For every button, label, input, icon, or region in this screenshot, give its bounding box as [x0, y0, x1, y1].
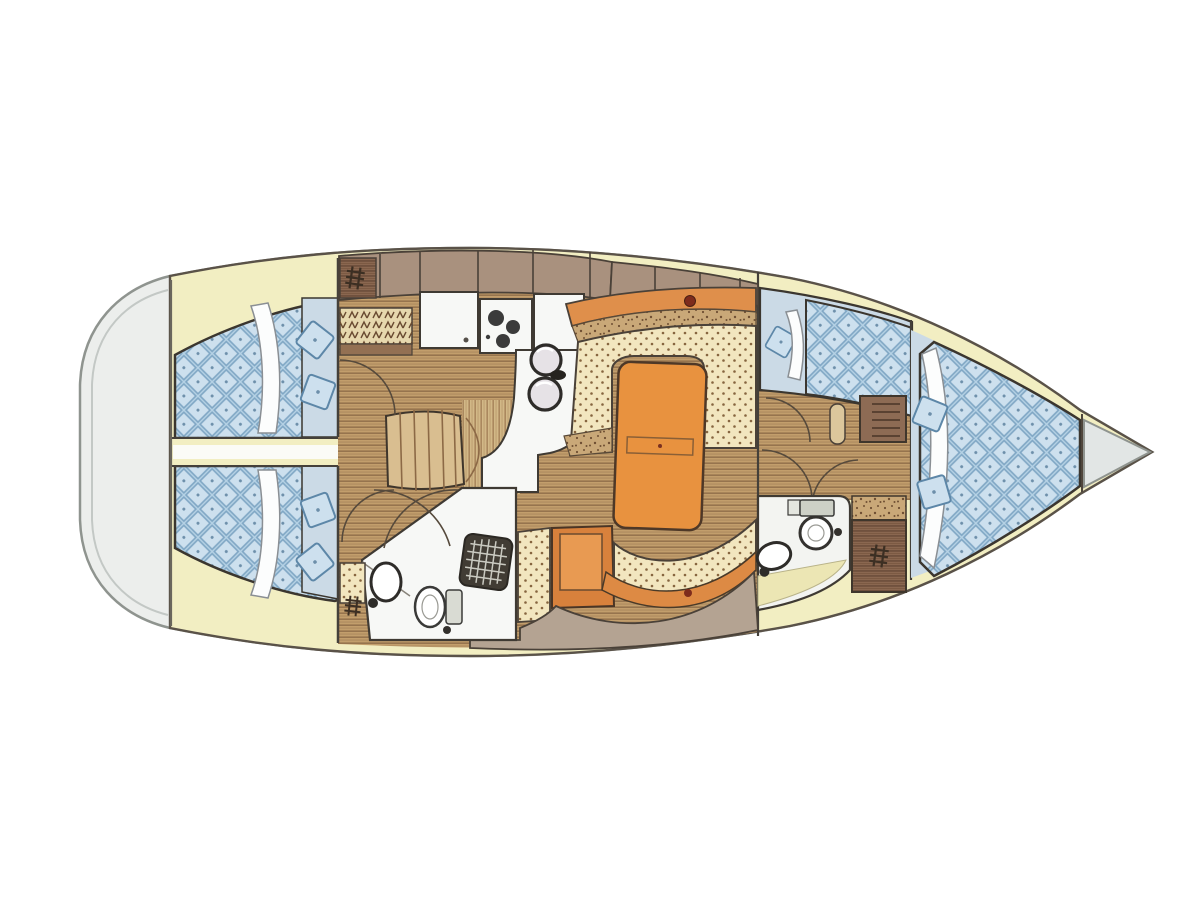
- cushion-icon: [917, 475, 952, 510]
- fridge-latch: [464, 338, 469, 343]
- wardrobe-shelf: [852, 496, 906, 520]
- floor-plan-image: [0, 0, 1200, 900]
- burner-icon: [496, 334, 510, 348]
- shower-grate-icon: [459, 533, 514, 591]
- bench-cushion-strip: [518, 528, 550, 622]
- fridge: [420, 292, 478, 348]
- faucet-icon: [550, 370, 566, 380]
- stove-knob: [486, 335, 490, 339]
- salon-table: [613, 362, 707, 531]
- burner-icon: [506, 320, 520, 334]
- wardrobe-forward: [852, 496, 906, 592]
- yacht-floor-plan: [0, 0, 1200, 900]
- bench-knob: [684, 589, 692, 597]
- chest-of-drawers: [860, 396, 906, 442]
- burner-icon: [488, 310, 504, 326]
- table-light-icon: [685, 296, 696, 307]
- vanity-cushion: [340, 563, 365, 603]
- berth-floor-strip: [302, 298, 338, 437]
- bottle-rack-texture: [340, 308, 412, 344]
- stove: [480, 299, 532, 353]
- galley-counter-strip: [340, 344, 412, 355]
- companionway-steps: [386, 409, 464, 491]
- armchair-cushion: [560, 534, 602, 590]
- berth-floor-strip: [302, 466, 338, 599]
- door-leaf: [830, 404, 845, 444]
- anchor-locker: [1082, 414, 1150, 492]
